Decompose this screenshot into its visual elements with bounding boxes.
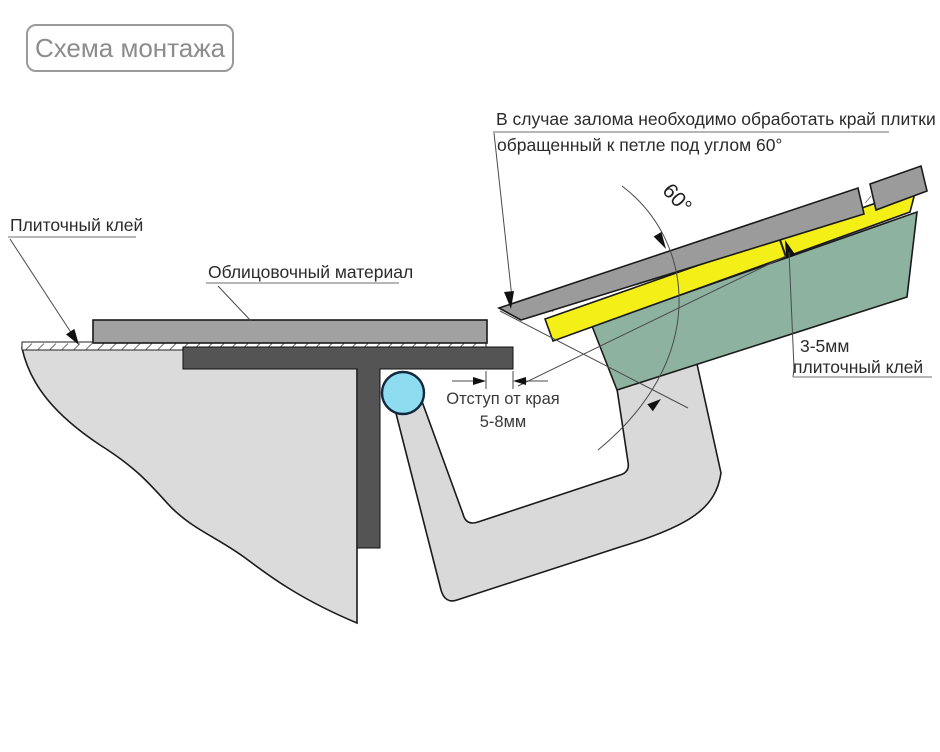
adhesive-thickness-label-line1: 3-5мм <box>800 336 849 356</box>
wall-section <box>22 348 357 623</box>
facing-material-label: Облицовочный материал <box>208 262 413 282</box>
edge-offset-label-line2: 5-8мм <box>480 413 527 431</box>
adhesive-thickness-label-line2: плиточный клей <box>793 357 923 377</box>
tile-adhesive-label: Плиточный клей <box>10 215 143 235</box>
angle-label: 60° <box>658 179 696 218</box>
diagram-title: Схема монтажа <box>35 33 226 63</box>
diagram-canvas: В случае залома необходимо обработать кр… <box>0 0 940 752</box>
note-line1: В случае залома необходимо обработать кр… <box>496 109 936 129</box>
installation-diagram: В случае залома необходимо обработать кр… <box>0 0 940 752</box>
diagram-title-badge: Схема монтажа <box>27 25 233 71</box>
note-line2: обращенный к петле под углом 60° <box>497 135 782 155</box>
hinge-pivot <box>382 372 424 414</box>
edge-offset-label-line1: Отступ от края <box>446 390 559 408</box>
facing-material-slab <box>93 320 487 343</box>
